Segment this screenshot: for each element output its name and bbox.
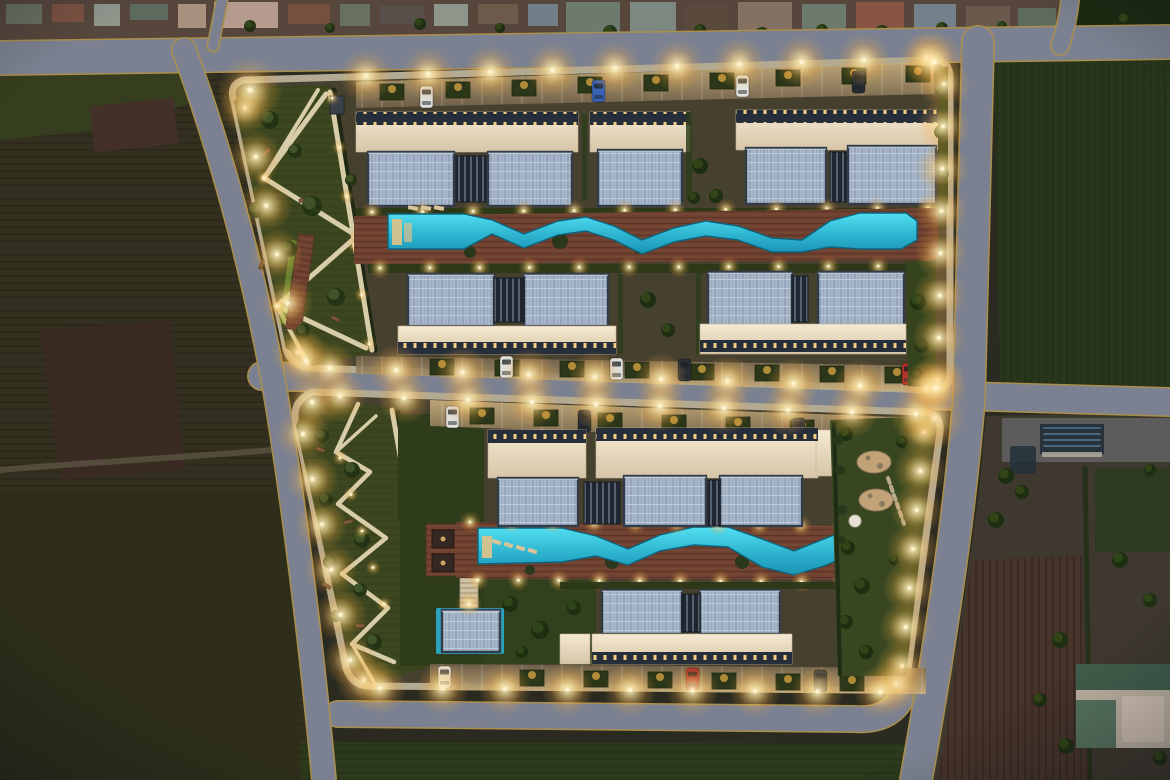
aerial-render-canvas: [0, 0, 1170, 780]
site-plan-render: [0, 0, 1170, 780]
dusk-vignette: [0, 0, 1170, 780]
scene-root: [0, 0, 1170, 780]
